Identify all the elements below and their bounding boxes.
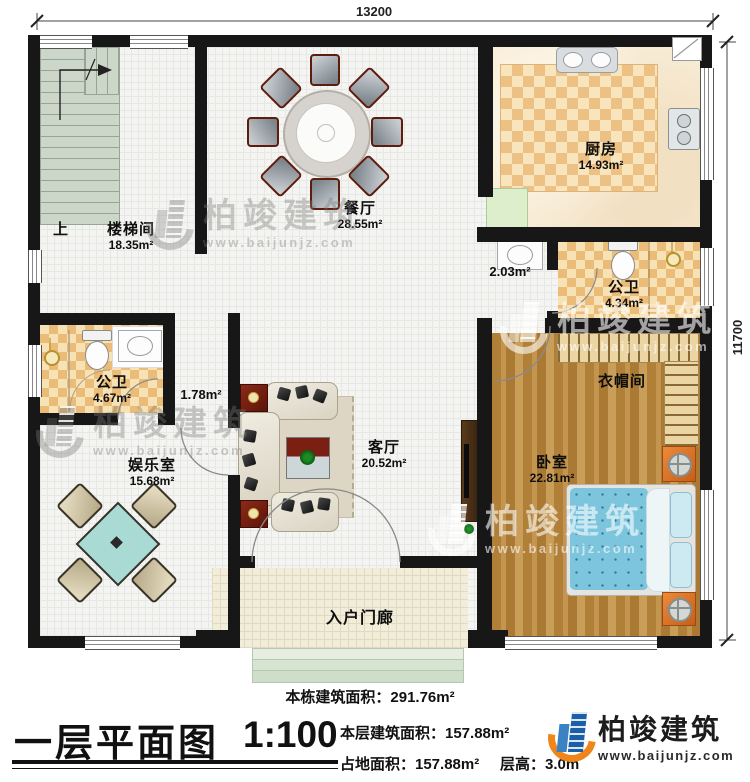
kitchen-corner-window: [672, 37, 702, 61]
bath-divider: [648, 242, 650, 316]
stat-building-total: 本栋建筑面积：291.76m²: [230, 686, 510, 707]
wall-bath-left-right: [163, 325, 175, 425]
window: [700, 248, 714, 306]
stat-land-area: 占地面积：157.88m²: [340, 753, 479, 774]
wall-entertainment-right-a: [228, 313, 240, 428]
side-table: [240, 500, 268, 528]
wall-bedroom-left: [477, 318, 492, 636]
window: [505, 636, 657, 650]
dining-chair: [371, 117, 403, 147]
toilet: [82, 330, 112, 341]
floor-porch: [212, 568, 468, 648]
wall-exterior-left: [28, 35, 40, 648]
window: [85, 636, 180, 650]
title-underline: [12, 760, 338, 764]
bath-lamp: [666, 252, 681, 267]
room-label-kitchen: 厨房14.93m²: [579, 142, 624, 172]
brand-name: 柏竣建筑: [598, 716, 734, 744]
room-label-cloakroom: 衣帽间: [598, 374, 646, 391]
coffee-table: [286, 437, 330, 479]
room-label-entertainment: 娱乐室15.68m²: [128, 458, 176, 488]
room-label-bath-left: 公卫4.67m²: [93, 375, 131, 405]
area-label-corridor: 2.03m²: [489, 264, 530, 279]
toilet-bowl: [85, 341, 109, 370]
plant-icon: [464, 524, 474, 534]
room-label-bath-top: 公卫4.34m²: [605, 280, 643, 310]
stove: [668, 108, 700, 150]
room-label-porch: 入户门廊: [326, 610, 394, 628]
tv-screen: [464, 444, 469, 498]
wardrobe-top: [557, 333, 699, 363]
window: [700, 68, 714, 180]
wall-hall-bath-left: [28, 313, 175, 325]
dining-table-center: [317, 124, 335, 142]
wall-bedroom-top: [545, 318, 712, 333]
stat-floor-area: 本层建筑面积：157.88m²: [340, 722, 509, 743]
title-underline-thin: [12, 768, 338, 769]
dimension-height: 11700: [730, 316, 745, 359]
nightstand: [662, 592, 696, 626]
kitchen-sink: [556, 47, 618, 73]
window: [130, 35, 188, 49]
drawing-scale: 1:100: [243, 714, 338, 756]
bed-mattress: [570, 488, 648, 590]
room-label-up: 上: [53, 222, 69, 239]
window: [28, 250, 42, 283]
bed-sheet-fold: [646, 488, 670, 592]
dining-chair: [310, 178, 340, 210]
bath-left-sink: [118, 330, 162, 362]
plant-icon: [300, 450, 315, 465]
wall-bath-left-bottom-b: [158, 413, 175, 425]
area-label-vestibule: 1.78m²: [180, 387, 221, 402]
page-title: 一层平面图: [14, 712, 219, 767]
window: [700, 490, 714, 600]
bed-pillow: [670, 492, 692, 538]
kitchen-rug: [500, 64, 658, 192]
staircase-upper-flight: [84, 47, 120, 95]
brand-url: www.baijunjz.com: [598, 749, 734, 762]
bath-lamp: [44, 350, 60, 366]
wall-bath-top-left-b: [547, 311, 558, 318]
window: [28, 345, 42, 397]
toilet-bowl: [611, 251, 635, 280]
dining-chair: [310, 54, 340, 86]
baijun-logo-icon: [548, 710, 594, 764]
wall-kitchen-bottom: [477, 227, 712, 242]
wall-kitchen-left: [478, 35, 493, 197]
room-label-living: 客厅20.52m²: [362, 440, 407, 470]
nightstand: [662, 446, 696, 482]
room-label-dining: 餐厅28.55m²: [338, 201, 383, 231]
wall-bath-top-left-a: [547, 242, 558, 270]
dimension-width: 13200: [352, 4, 396, 19]
wall-stair-dining: [195, 47, 207, 254]
room-label-stairwell: 楼梯间18.35m²: [107, 222, 155, 252]
wall-bath-left-bottom-a: [28, 413, 118, 425]
wardrobe-right: [664, 361, 699, 447]
window: [40, 35, 92, 49]
porch-step: [252, 670, 464, 683]
dining-chair: [247, 117, 279, 147]
room-label-bedroom: 卧室22.81m²: [530, 455, 575, 485]
floor-plan: 13200 11700 上 楼梯间18.35m² 餐厅28.55m² 厨房14.…: [0, 0, 750, 782]
brand-logo: 柏竣建筑 www.baijunjz.com: [548, 710, 734, 764]
wall-living-bottom-a: [228, 556, 255, 568]
bed-pillow: [670, 542, 692, 588]
side-table: [240, 384, 268, 412]
